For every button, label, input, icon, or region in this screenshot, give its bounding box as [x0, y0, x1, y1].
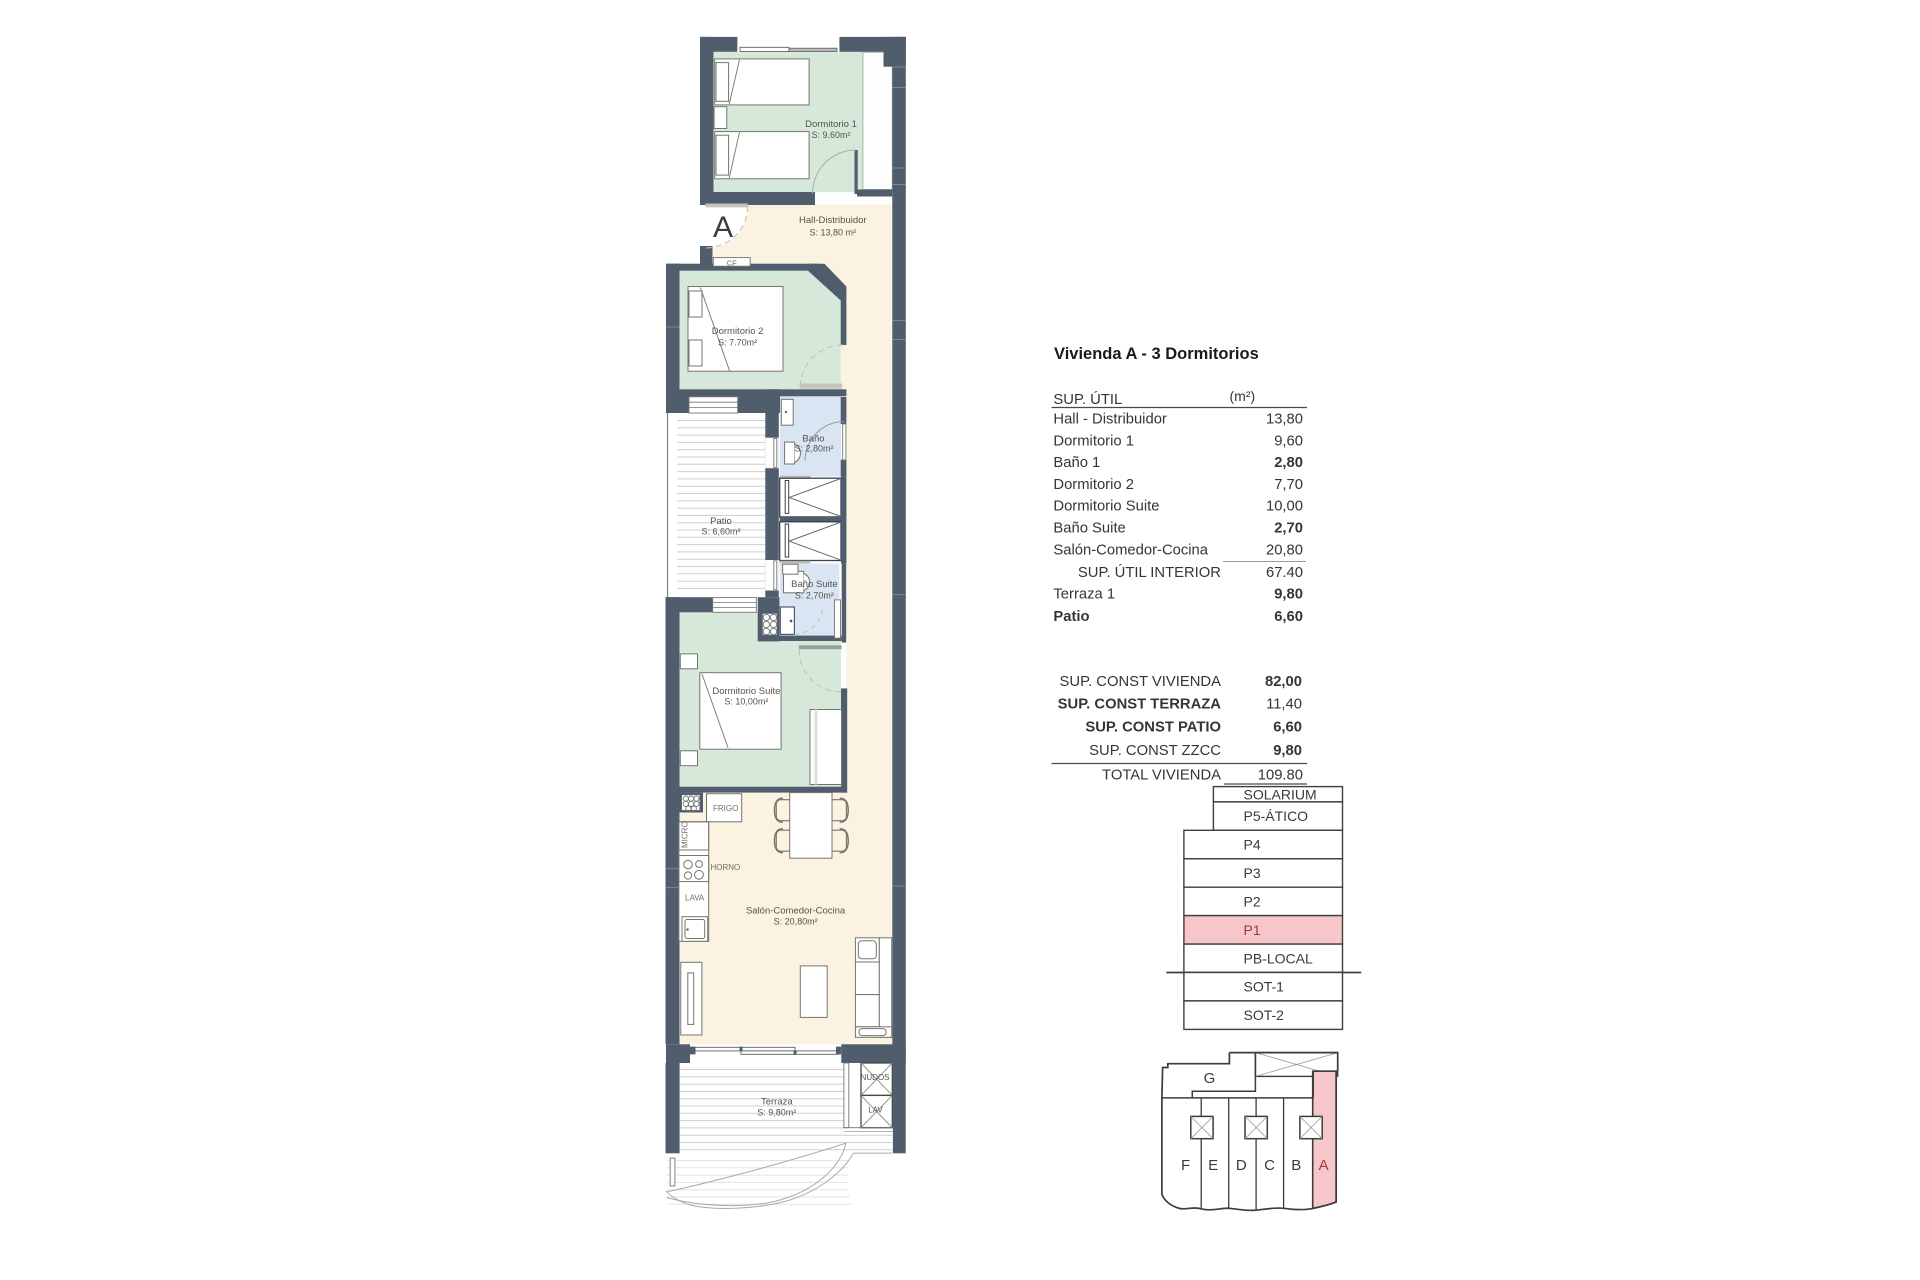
- svg-text:Hall-Distribuidor: Hall-Distribuidor: [799, 215, 867, 226]
- svg-text:S: 10,00m²: S: 10,00m²: [724, 697, 768, 707]
- svg-text:Terraza 1: Terraza 1: [1053, 587, 1115, 603]
- svg-text:S: 9.60m²: S: 9.60m²: [811, 130, 850, 140]
- svg-text:A: A: [1319, 1157, 1329, 1174]
- svg-text:C: C: [1264, 1157, 1275, 1174]
- svg-text:S: 7.70m²: S: 7.70m²: [718, 338, 757, 348]
- svg-text:2,70: 2,70: [1274, 521, 1303, 537]
- svg-text:SUP. ÚTIL INTERIOR: SUP. ÚTIL INTERIOR: [1078, 564, 1221, 581]
- svg-text:Patio: Patio: [1053, 609, 1089, 625]
- svg-text:11,40: 11,40: [1266, 696, 1302, 712]
- svg-text:P5-ÁTICO: P5-ÁTICO: [1244, 808, 1309, 824]
- svg-text:SUP. CONST VIVIENDA: SUP. CONST VIVIENDA: [1060, 674, 1222, 690]
- svg-text:Hall - Distribuidor: Hall - Distribuidor: [1053, 412, 1167, 428]
- svg-text:S: 13,80 m²: S: 13,80 m²: [810, 228, 857, 238]
- svg-text:D: D: [1236, 1157, 1247, 1174]
- svg-text:20,80: 20,80: [1266, 542, 1303, 558]
- svg-text:2,80: 2,80: [1274, 455, 1303, 471]
- svg-text:6,60: 6,60: [1274, 609, 1303, 625]
- svg-text:6,60: 6,60: [1273, 720, 1302, 736]
- svg-text:Dormitorio Suite: Dormitorio Suite: [1053, 499, 1159, 515]
- svg-text:S: 9,80m²: S: 9,80m²: [757, 1108, 796, 1118]
- svg-text:Dormitorio 1: Dormitorio 1: [1053, 433, 1134, 449]
- svg-text:Baño Suite: Baño Suite: [1053, 521, 1125, 537]
- svg-text:Terraza: Terraza: [761, 1097, 793, 1108]
- svg-text:9,80: 9,80: [1273, 743, 1302, 759]
- svg-text:Dormitorio 1: Dormitorio 1: [805, 119, 857, 130]
- svg-text:(m²): (m²): [1230, 388, 1256, 404]
- svg-text:109.80: 109.80: [1258, 767, 1303, 783]
- svg-text:S: 2,80m²: S: 2,80m²: [794, 444, 833, 454]
- svg-text:CF: CF: [727, 258, 737, 267]
- svg-text:Baño 1: Baño 1: [1053, 455, 1100, 471]
- svg-text:FRIGO: FRIGO: [713, 804, 738, 813]
- svg-text:G: G: [1204, 1070, 1216, 1087]
- svg-text:PB-LOCAL: PB-LOCAL: [1244, 950, 1313, 966]
- svg-text:P2: P2: [1244, 893, 1261, 909]
- svg-text:SUP. CONST PATIO: SUP. CONST PATIO: [1085, 720, 1221, 736]
- svg-text:Dormitorio 2: Dormitorio 2: [712, 326, 764, 337]
- svg-text:Dormitorio Suite: Dormitorio Suite: [712, 686, 780, 697]
- svg-text:9,80: 9,80: [1274, 587, 1303, 603]
- svg-text:LAVA: LAVA: [685, 894, 705, 903]
- svg-text:SUP. ÚTIL: SUP. ÚTIL: [1053, 391, 1122, 408]
- svg-text:S: 20,80m²: S: 20,80m²: [774, 917, 818, 927]
- svg-text:E: E: [1208, 1157, 1218, 1174]
- svg-text:Dormitorio 2: Dormitorio 2: [1053, 477, 1134, 493]
- svg-text:Vivienda A - 3 Dormitorios: Vivienda A - 3 Dormitorios: [1054, 345, 1259, 363]
- svg-text:P1: P1: [1244, 922, 1261, 938]
- svg-text:13,80: 13,80: [1266, 412, 1303, 428]
- svg-text:F: F: [1181, 1157, 1190, 1174]
- svg-text:67.40: 67.40: [1266, 565, 1303, 581]
- svg-text:P4: P4: [1244, 837, 1261, 853]
- svg-text:SOT-1: SOT-1: [1244, 979, 1285, 995]
- svg-text:SOLARIUM: SOLARIUM: [1244, 787, 1317, 803]
- svg-text:Patio: Patio: [710, 516, 732, 527]
- svg-text:B: B: [1291, 1157, 1301, 1174]
- svg-text:10,00: 10,00: [1266, 499, 1303, 515]
- svg-text:Salón-Comedor-Cocina: Salón-Comedor-Cocina: [746, 906, 846, 917]
- svg-text:7,70: 7,70: [1274, 477, 1303, 493]
- svg-text:MICRO: MICRO: [681, 821, 690, 848]
- svg-text:S: 2,70m²: S: 2,70m²: [795, 591, 834, 601]
- svg-text:82,00: 82,00: [1265, 674, 1302, 690]
- svg-text:LAV: LAV: [868, 1106, 883, 1115]
- svg-text:Baño Suite: Baño Suite: [791, 579, 837, 590]
- svg-text:9,60: 9,60: [1274, 433, 1303, 449]
- svg-text:SUP. CONST TERRAZA: SUP. CONST TERRAZA: [1058, 696, 1222, 712]
- svg-text:Salón-Comedor-Cocina: Salón-Comedor-Cocina: [1053, 542, 1208, 558]
- svg-text:TOTAL VIVIENDA: TOTAL VIVIENDA: [1102, 767, 1221, 783]
- svg-text:SUP. CONST ZZCC: SUP. CONST ZZCC: [1089, 743, 1221, 759]
- svg-text:NUDOS: NUDOS: [861, 1073, 890, 1082]
- svg-text:HORNO: HORNO: [711, 863, 741, 872]
- svg-text:A: A: [713, 211, 733, 244]
- svg-text:SOT-2: SOT-2: [1244, 1007, 1285, 1023]
- svg-text:P3: P3: [1244, 865, 1261, 881]
- svg-text:S: 6,60m²: S: 6,60m²: [701, 527, 740, 537]
